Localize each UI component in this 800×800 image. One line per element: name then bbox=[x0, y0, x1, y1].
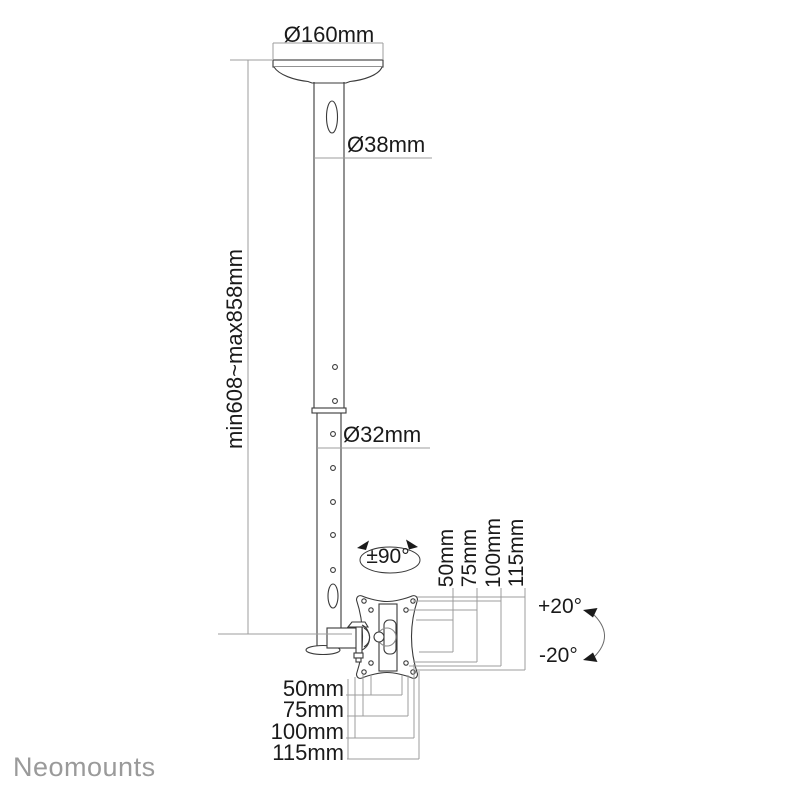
ceiling-plate bbox=[273, 60, 383, 83]
lower-pole-diameter-label: Ø32mm bbox=[343, 424, 421, 446]
brand-logo: Neomounts bbox=[13, 752, 156, 782]
swivel-range-label: ±90° bbox=[348, 546, 428, 568]
height-range-label: min608~max858mm bbox=[224, 249, 246, 449]
tilt-arrow-down-icon bbox=[583, 653, 598, 663]
diagram-line-art bbox=[0, 0, 800, 800]
mounting-pole bbox=[306, 82, 346, 655]
ceiling-plate-diameter-label: Ø160mm bbox=[269, 24, 389, 46]
vesa-vertical-label: 50mm bbox=[436, 518, 458, 598]
tilt-indicator bbox=[583, 608, 605, 662]
vesa-vertical-label: 75mm bbox=[459, 518, 481, 598]
tilt-down-label: -20° bbox=[539, 645, 578, 667]
vesa-plate bbox=[357, 596, 418, 679]
tilt-up-label: +20° bbox=[538, 596, 582, 618]
vesa-vertical-label: 115mm bbox=[506, 513, 528, 593]
product-dimension-diagram: Ø160mm Ø38mm Ø32mm min608~max858mm ±90° … bbox=[0, 0, 800, 800]
vesa-horizontal-label: 75mm bbox=[244, 699, 344, 721]
vesa-horizontal-label: 115mm bbox=[244, 742, 344, 764]
upper-pole-diameter-label: Ø38mm bbox=[347, 134, 425, 156]
vesa-vertical-label: 100mm bbox=[483, 513, 505, 593]
